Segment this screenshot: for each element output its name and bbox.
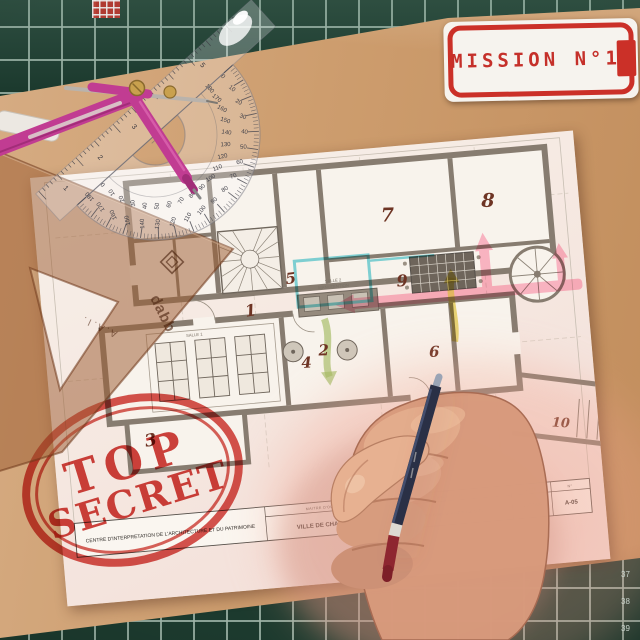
desk-scene: SALLE 1 SALLE 2 MANUTENTION 1 2 3 4 5 6 … [0,0,640,640]
mat-edge-number: 39 [621,624,639,633]
mat-edge-number: 37 [621,570,639,579]
pencil-tip [436,377,439,386]
mat-edge-number: 38 [621,597,639,606]
hand-layer [0,0,640,640]
pencil-white-band [394,524,397,536]
pencil-red-end [388,536,394,570]
